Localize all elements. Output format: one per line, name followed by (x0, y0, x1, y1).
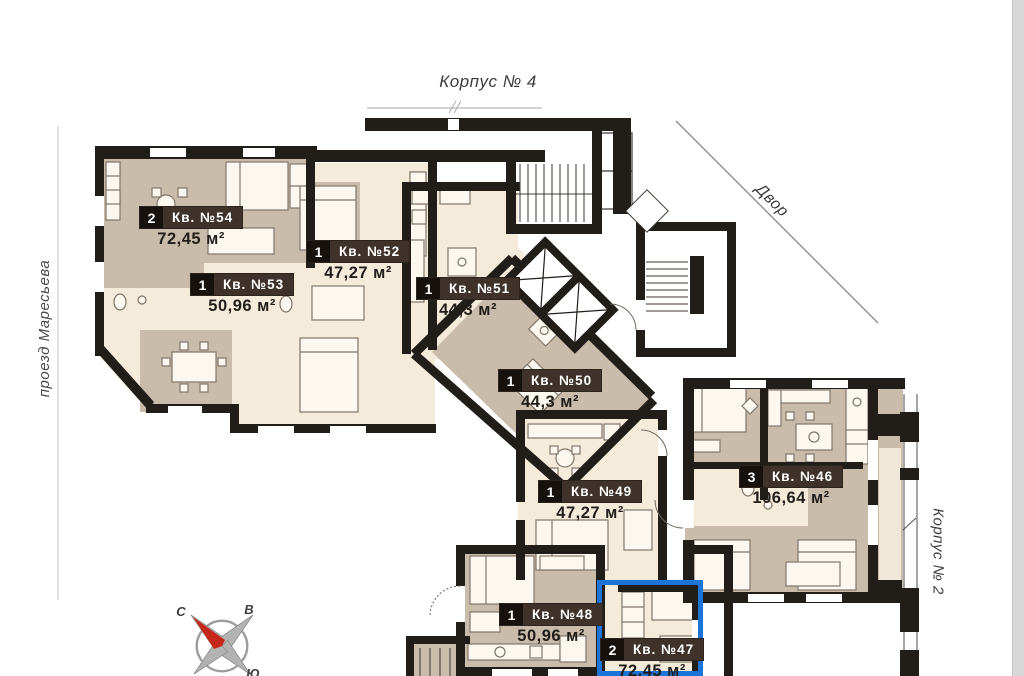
apartment-plate[interactable]: 1 Кв. №49 (539, 481, 641, 502)
apartment-label-47[interactable]: 2 Кв. №47 72,45 м² (601, 639, 703, 676)
apartment-label-46[interactable]: 3 Кв. №46 106,64 м² (740, 466, 842, 508)
room-count-badge: 3 (740, 466, 763, 487)
room-count-badge: 2 (601, 639, 624, 660)
apartment-plate[interactable]: 1 Кв. №53 (191, 274, 293, 295)
apartment-label-50[interactable]: 1 Кв. №50 44,3 м² (499, 370, 601, 412)
apartment-number: Кв. №46 (763, 466, 842, 487)
apartment-plate[interactable]: 1 Кв. №52 (307, 241, 409, 262)
compass-icon: С В Ю З (176, 602, 259, 676)
room-count-badge: 1 (539, 481, 562, 502)
image-edge-strip (1012, 0, 1024, 676)
apartment-label-54[interactable]: 2 Кв. №54 72,45 м² (140, 207, 242, 249)
apartment-area: 44,3 м² (439, 301, 497, 320)
apt46-balcony (879, 448, 901, 598)
room-count-badge: 2 (140, 207, 163, 228)
apartment-area: 44,3 м² (521, 393, 579, 412)
apartment-plate[interactable]: 1 Кв. №51 (417, 278, 519, 299)
apartment-area: 72,45 м² (157, 230, 225, 249)
apartment-number: Кв. №50 (522, 370, 601, 391)
floor-plan-page: С В Ю З Корпус № 4 Двор Корпус № 2 проез… (0, 0, 1024, 676)
compass-north-label: С (176, 604, 186, 619)
room-count-badge: 1 (499, 370, 522, 391)
floor-plan-drawing: С В Ю З (0, 0, 1024, 676)
apartment-plate[interactable]: 2 Кв. №54 (140, 207, 242, 228)
room-count-badge: 1 (417, 278, 440, 299)
apartment-number: Кв. №48 (523, 604, 602, 625)
apartment-area: 47,27 м² (556, 504, 624, 523)
apartment-area: 50,96 м² (208, 297, 276, 316)
apartment-plate[interactable]: 1 Кв. №50 (499, 370, 601, 391)
apartment-number: Кв. №54 (163, 207, 242, 228)
apartment-plate[interactable]: 2 Кв. №47 (601, 639, 703, 660)
apartment-label-49[interactable]: 1 Кв. №49 47,27 м² (539, 481, 641, 523)
room-count-badge: 1 (191, 274, 214, 295)
apartment-number: Кв. №52 (330, 241, 409, 262)
apartment-label-52[interactable]: 1 Кв. №52 47,27 м² (307, 241, 409, 283)
room-count-badge: 1 (307, 241, 330, 262)
apartment-number: Кв. №49 (562, 481, 641, 502)
compass-east-label: В (244, 602, 253, 617)
apartment-number: Кв. №53 (214, 274, 293, 295)
apartment-label-53[interactable]: 1 Кв. №53 50,96 м² (191, 274, 293, 316)
apartment-area: 106,64 м² (752, 489, 829, 508)
building-4-label: Корпус № 4 (408, 72, 568, 92)
compass-south-label: Ю (246, 666, 260, 676)
apartment-label-48[interactable]: 1 Кв. №48 50,96 м² (500, 604, 602, 646)
street-label: проезд Маресьева (36, 236, 53, 421)
apartment-area: 47,27 м² (324, 264, 392, 283)
apartment-number: Кв. №47 (624, 639, 703, 660)
apartment-area: 50,96 м² (517, 627, 585, 646)
room-count-badge: 1 (500, 604, 523, 625)
apartment-plate[interactable]: 1 Кв. №48 (500, 604, 602, 625)
apartment-plate[interactable]: 3 Кв. №46 (740, 466, 842, 487)
apartment-number: Кв. №51 (440, 278, 519, 299)
apartment-area: 72,45 м² (618, 662, 686, 676)
building-2-label: Корпус № 2 (930, 482, 947, 622)
apartment-label-51[interactable]: 1 Кв. №51 44,3 м² (417, 278, 519, 320)
